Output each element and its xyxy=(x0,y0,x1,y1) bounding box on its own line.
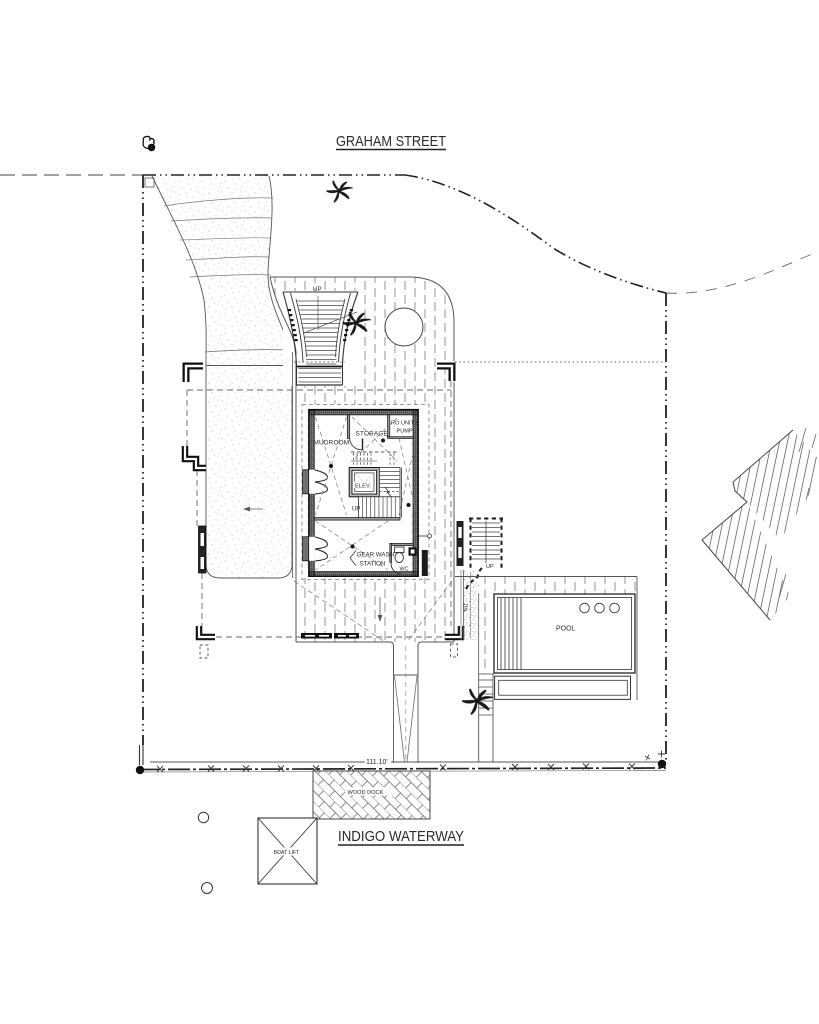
svg-text:ELEV.: ELEV. xyxy=(355,484,371,490)
svg-text:MUDROOM: MUDROOM xyxy=(314,440,350,447)
svg-text:UP: UP xyxy=(486,564,494,570)
svg-text:GRAHAM STREET: GRAHAM STREET xyxy=(336,133,446,150)
svg-text:STORAGE: STORAGE xyxy=(356,431,389,438)
svg-text:UP: UP xyxy=(352,507,360,513)
svg-text:DN: DN xyxy=(462,604,468,612)
svg-text:GEAR WASH: GEAR WASH xyxy=(357,552,395,559)
svg-text:UP: UP xyxy=(313,287,322,293)
svg-text:BOAT LIFT: BOAT LIFT xyxy=(274,850,301,856)
svg-text:PUMP: PUMP xyxy=(397,429,413,435)
svg-text:STATION: STATION xyxy=(360,561,386,568)
svg-text:INDIGO WATERWAY: INDIGO WATERWAY xyxy=(338,828,464,845)
svg-text:WOOD DOCK: WOOD DOCK xyxy=(348,790,384,796)
svg-text:111.10': 111.10' xyxy=(366,759,388,766)
svg-text:WC: WC xyxy=(400,567,409,573)
svg-text:POOL: POOL xyxy=(556,626,576,633)
svg-text:RO UNIT &: RO UNIT & xyxy=(391,421,419,427)
